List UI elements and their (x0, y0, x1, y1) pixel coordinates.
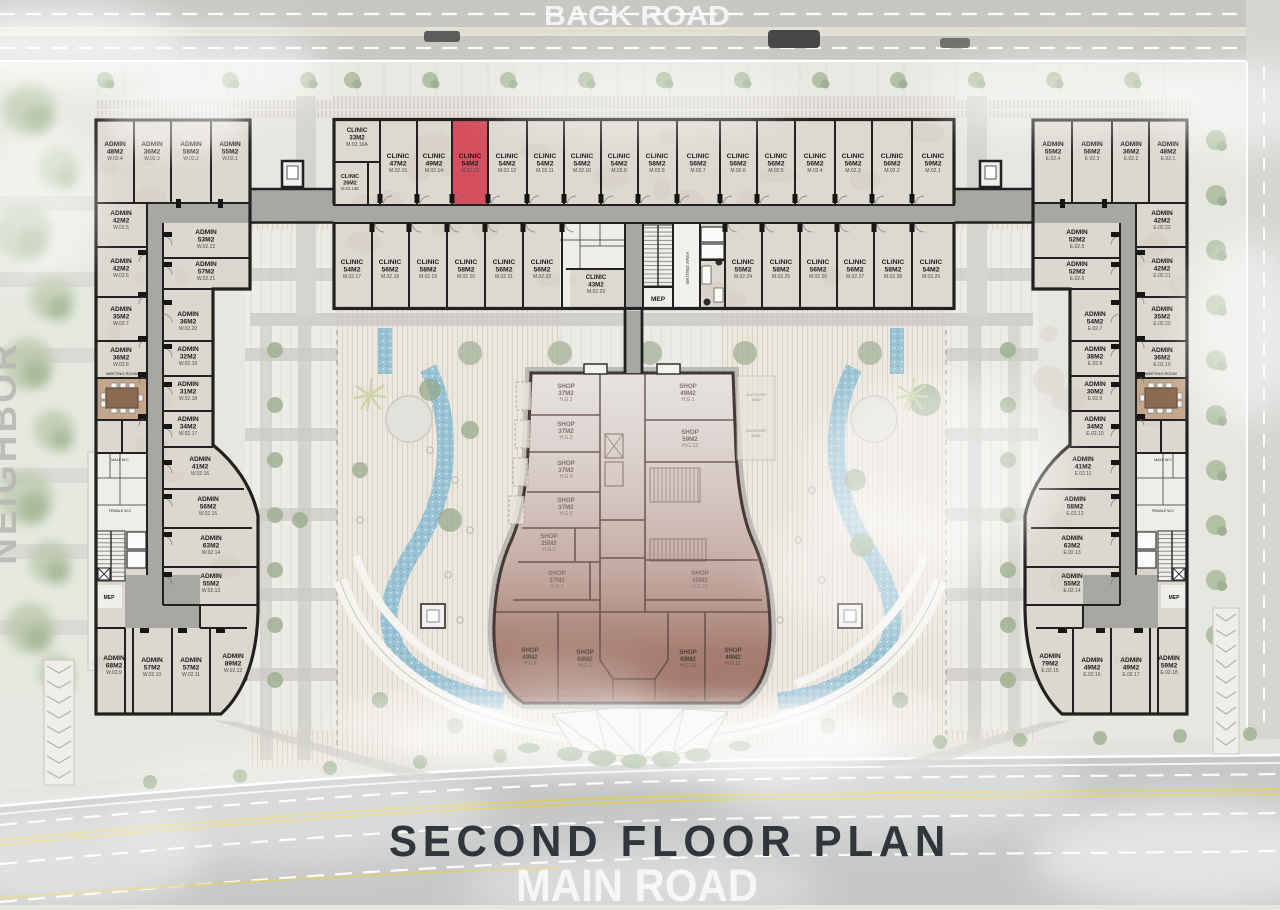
svg-text:MEETING ROOM: MEETING ROOM (1145, 371, 1177, 376)
svg-text:SECOND FLOOR PLAN: SECOND FLOOR PLAN (389, 817, 951, 866)
svg-text:CLINIC49M2M.02.14: CLINIC49M2M.02.14 (423, 153, 446, 174)
svg-text:ADMIN63M2E.02.13: ADMIN63M2E.02.13 (1061, 535, 1083, 556)
svg-text:CLINIC56M2M.02.22: CLINIC56M2M.02.22 (531, 259, 554, 280)
svg-text:ADMIN57M2W.02.21: ADMIN57M2W.02.21 (195, 261, 217, 282)
svg-text:MEP: MEP (651, 296, 666, 303)
svg-text:SHOP37M2H.G.4: SHOP37M2H.G.4 (557, 460, 575, 480)
svg-text:ADMIN79M2E.02.15: ADMIN79M2E.02.15 (1039, 653, 1061, 674)
svg-text:ADMIN36M2W.02.8: ADMIN36M2W.02.8 (110, 347, 132, 368)
svg-text:CLINIC58M2M.02.25: CLINIC58M2M.02.25 (770, 259, 793, 280)
svg-text:ADMIN55M2E.02.14: ADMIN55M2E.02.14 (1061, 573, 1083, 594)
svg-text:CLINIC54M2M.02.13: CLINIC54M2M.02.13 (459, 153, 482, 174)
svg-text:19M2: 19M2 (751, 398, 761, 402)
svg-text:CLINIC54M2M.02.29: CLINIC54M2M.02.29 (920, 259, 943, 280)
svg-text:ADMIN63M2W.02.14: ADMIN63M2W.02.14 (200, 535, 222, 556)
svg-text:SHOP37M2H.G.7: SHOP37M2H.G.7 (548, 570, 566, 590)
svg-text:SHOP59M2H.G.13: SHOP59M2H.G.13 (681, 429, 699, 449)
svg-text:ADMIN49M2E.02.16: ADMIN49M2E.02.16 (1081, 657, 1103, 678)
svg-text:ADMIN34M2E.02.10: ADMIN34M2E.02.10 (1084, 416, 1106, 437)
svg-text:SHOP25M2H.G.6: SHOP25M2H.G.6 (540, 533, 558, 553)
svg-text:ADMIN36M2W.02.20: ADMIN36M2W.02.20 (177, 311, 199, 332)
svg-text:SHOP37M2H.G.2: SHOP37M2H.G.2 (557, 383, 575, 403)
svg-text:ADMIN53M2W.02.22: ADMIN53M2W.02.22 (195, 229, 217, 250)
svg-text:ADMIN41M2E.02.11: ADMIN41M2E.02.11 (1072, 456, 1094, 477)
svg-text:ADMIN55M2W.02.13: ADMIN55M2W.02.13 (200, 573, 222, 594)
svg-text:CLINIC43M2M.02.23: CLINIC43M2M.02.23 (586, 274, 607, 295)
svg-text:MEP: MEP (1169, 595, 1181, 601)
svg-text:ADMIN35M2E.02.20: ADMIN35M2E.02.20 (1151, 306, 1173, 327)
svg-text:ADMIN36M2E.02.19: ADMIN36M2E.02.19 (1151, 347, 1173, 368)
svg-text:CLINIC56M2M.02.21: CLINIC56M2M.02.21 (493, 259, 516, 280)
svg-text:ADMIN42M2E.02.22: ADMIN42M2E.02.22 (1151, 210, 1173, 231)
svg-text:ADMIN31M2W.02.18: ADMIN31M2W.02.18 (177, 381, 199, 402)
svg-text:ADMIN68M2W.02.9: ADMIN68M2W.02.9 (103, 655, 125, 676)
svg-text:ADMIN34M2W.02.17: ADMIN34M2W.02.17 (177, 416, 199, 437)
svg-text:CLINIC55M2M.02.24: CLINIC55M2M.02.24 (732, 259, 755, 280)
svg-text:CLINIC56M2M.02.27: CLINIC56M2M.02.27 (844, 259, 867, 280)
svg-text:CLINIC58M2M.02.19: CLINIC58M2M.02.19 (417, 259, 440, 280)
svg-text:CLINIC47M2M.02.15: CLINIC47M2M.02.15 (387, 153, 410, 174)
svg-text:CLINIC54M2M.02.12: CLINIC54M2M.02.12 (496, 153, 519, 174)
svg-text:MALE W.C: MALE W.C (111, 458, 129, 462)
svg-text:ADMIN56M2W.02.15: ADMIN56M2W.02.15 (197, 496, 219, 517)
svg-text:SHOP55M2H.G.12: SHOP55M2H.G.12 (691, 570, 709, 590)
svg-text:CLINIC58M2M.02.28: CLINIC58M2M.02.28 (882, 259, 905, 280)
svg-text:CLINIC58M2M.02.20: CLINIC58M2M.02.20 (455, 259, 478, 280)
svg-text:ADMIN32M2W.02.19: ADMIN32M2W.02.19 (177, 346, 199, 367)
svg-text:ADMIN58M2E.02.12: ADMIN58M2E.02.12 (1064, 496, 1086, 517)
svg-text:FEMALE W.C: FEMALE W.C (109, 509, 132, 513)
svg-text:CLINIC54M2M.02.11: CLINIC54M2M.02.11 (534, 153, 557, 174)
svg-text:ADMIN49M2E.02.17: ADMIN49M2E.02.17 (1120, 657, 1142, 678)
svg-text:ADMIN35M2W.02.7: ADMIN35M2W.02.7 (110, 306, 132, 327)
svg-text:SHOP37M2H.G.5: SHOP37M2H.G.5 (557, 497, 575, 517)
svg-text:WAITING AREA: WAITING AREA (685, 251, 690, 285)
svg-text:MALE W.C: MALE W.C (1154, 458, 1172, 462)
svg-text:SHOP37M2H.G.3: SHOP37M2H.G.3 (557, 421, 575, 441)
svg-text:FEMALE W.C: FEMALE W.C (1152, 509, 1175, 513)
svg-text:MEP: MEP (104, 595, 116, 601)
svg-text:CLINIC56M2M.02.18: CLINIC56M2M.02.18 (379, 259, 402, 280)
svg-text:CLINIC54M2M.02.17: CLINIC54M2M.02.17 (341, 259, 364, 280)
svg-text:MEETING ROOM: MEETING ROOM (106, 371, 138, 376)
svg-text:SHOP69M2H.G.10: SHOP69M2H.G.10 (679, 649, 697, 669)
svg-text:ADMIN42M2W.02.5: ADMIN42M2W.02.5 (110, 210, 132, 231)
svg-text:BACK ROAD: BACK ROAD (544, 0, 730, 31)
svg-text:ADMIN42M2W.02.6: ADMIN42M2W.02.6 (110, 258, 132, 279)
svg-text:ADMIN57M2W.02.11: ADMIN57M2W.02.11 (180, 657, 202, 678)
svg-text:ADMIN89M2W.02.12: ADMIN89M2W.02.12 (222, 653, 244, 674)
svg-text:MAIN ROAD: MAIN ROAD (516, 860, 758, 905)
svg-text:ADMIN59M2E.02.18: ADMIN59M2E.02.18 (1158, 655, 1180, 676)
svg-text:OUTDOOR: OUTDOOR (746, 429, 766, 433)
svg-text:CLINIC26M2M.02.16B: CLINIC26M2M.02.16B (341, 174, 359, 191)
svg-text:SHOP49M2H.G.11: SHOP49M2H.G.11 (724, 647, 742, 667)
svg-text:SHOP49M2H.G.1: SHOP49M2H.G.1 (679, 383, 697, 403)
svg-text:NEIGHBOR: NEIGHBOR (0, 341, 24, 564)
svg-text:24M2: 24M2 (751, 434, 761, 438)
svg-text:ADMIN57M2W.02.10: ADMIN57M2W.02.10 (141, 657, 163, 678)
svg-text:ADMIN48M2W.02.4: ADMIN48M2W.02.4 (104, 141, 126, 162)
svg-text:ADMIN41M2W.02.16: ADMIN41M2W.02.16 (189, 456, 211, 477)
svg-text:CLINIC54M2M.02.10: CLINIC54M2M.02.10 (571, 153, 594, 174)
svg-text:OUTDOOR: OUTDOOR (746, 393, 766, 397)
svg-text:ADMIN42M2E.02.21: ADMIN42M2E.02.21 (1151, 258, 1173, 279)
svg-text:CLINIC56M2M.02.26: CLINIC56M2M.02.26 (807, 259, 830, 280)
